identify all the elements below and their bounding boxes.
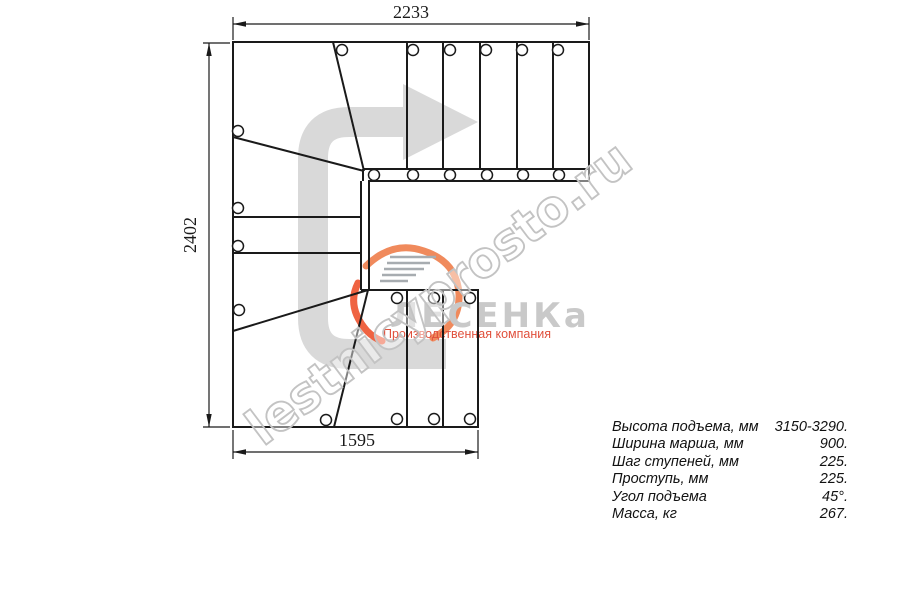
spec-row: Проступь, мм225. — [612, 471, 848, 488]
spec-value: 267. — [820, 506, 848, 523]
stair-drawing-page: ЛЕСЕНКа Производственная компания — [0, 0, 900, 600]
spec-label: Проступь, мм — [612, 471, 708, 488]
dimension-left-label: 2402 — [180, 217, 200, 253]
spec-value: 225. — [820, 471, 848, 488]
spec-label: Шаг ступеней, мм — [612, 454, 739, 471]
spec-label: Высота подъема, мм — [612, 419, 759, 436]
watermark-text: lestnicyprosto.ru — [235, 130, 642, 457]
winder-line — [333, 42, 364, 171]
spec-label: Угол подъема — [612, 489, 707, 506]
dimension-bottom-label: 1595 — [339, 430, 375, 450]
spec-value: 225. — [820, 454, 848, 471]
spec-table: Высота подъема, мм3150-3290.Ширина марша… — [612, 419, 848, 523]
direction-arrow-head — [403, 84, 478, 160]
spec-value: 3150-3290. — [775, 419, 848, 436]
spec-row: Высота подъема, мм3150-3290. — [612, 419, 848, 436]
spec-row: Ширина марша, мм900. — [612, 436, 848, 453]
dimension-top-label: 2233 — [393, 2, 429, 22]
spec-label: Масса, кг — [612, 506, 677, 523]
spec-label: Ширина марша, мм — [612, 436, 744, 453]
spec-value: 45°. — [822, 489, 848, 506]
spec-value: 900. — [820, 436, 848, 453]
spec-row: Масса, кг267. — [612, 506, 848, 523]
spec-row: Шаг ступеней, мм225. — [612, 454, 848, 471]
spec-row: Угол подъема45°. — [612, 489, 848, 506]
